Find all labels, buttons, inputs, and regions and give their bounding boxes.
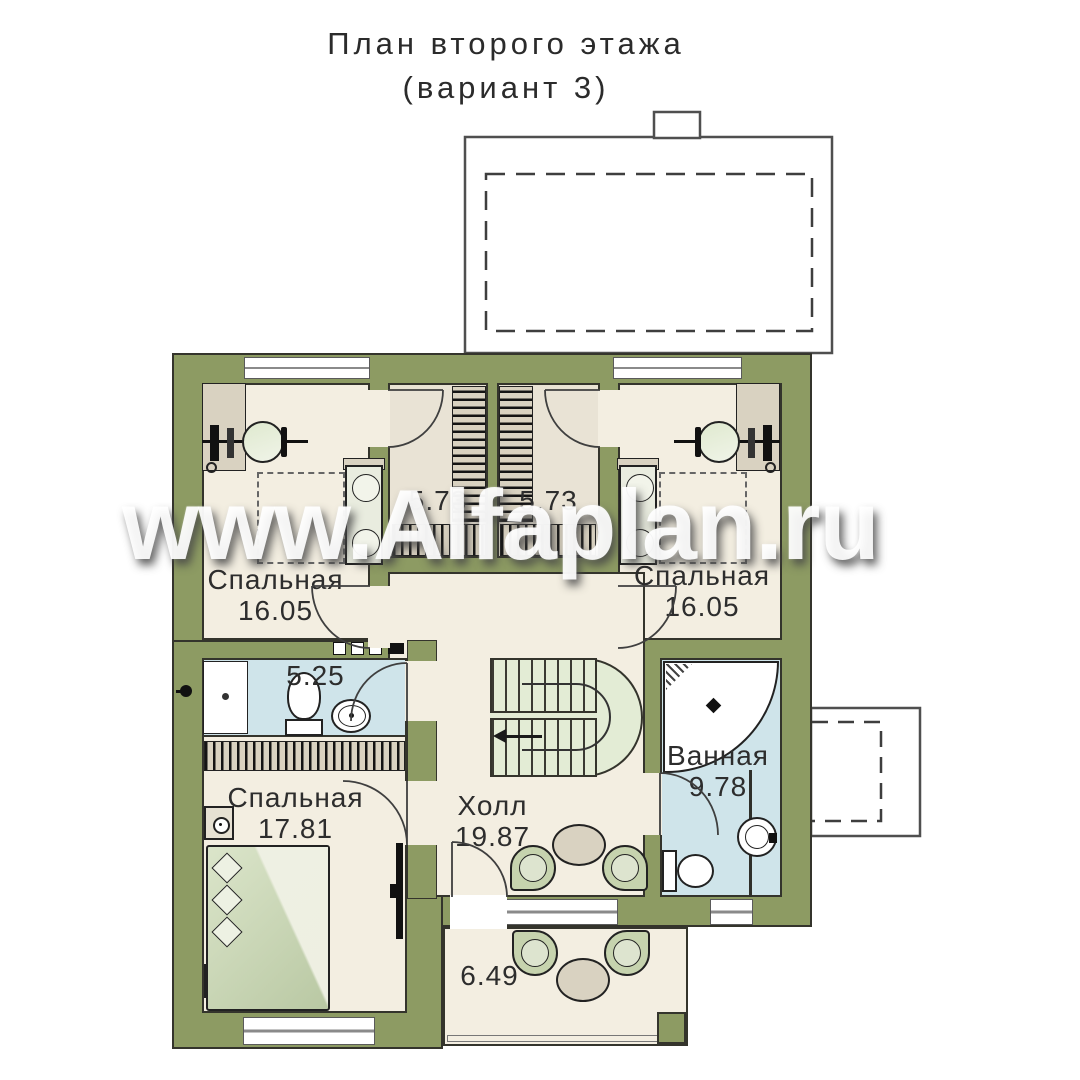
floor-plan-page: План второго этажа (вариант 3) <box>0 0 1080 1080</box>
door-arc <box>351 663 407 721</box>
stairs-walkline <box>522 684 610 750</box>
door-arc <box>660 773 718 835</box>
door-arc <box>312 586 370 648</box>
door-arc <box>388 390 443 447</box>
door-arc <box>343 781 407 845</box>
door-arc <box>545 390 600 447</box>
door-arc <box>452 842 507 897</box>
door-arc <box>618 586 676 648</box>
watermark: www.Alfaplan.ru <box>122 468 879 582</box>
